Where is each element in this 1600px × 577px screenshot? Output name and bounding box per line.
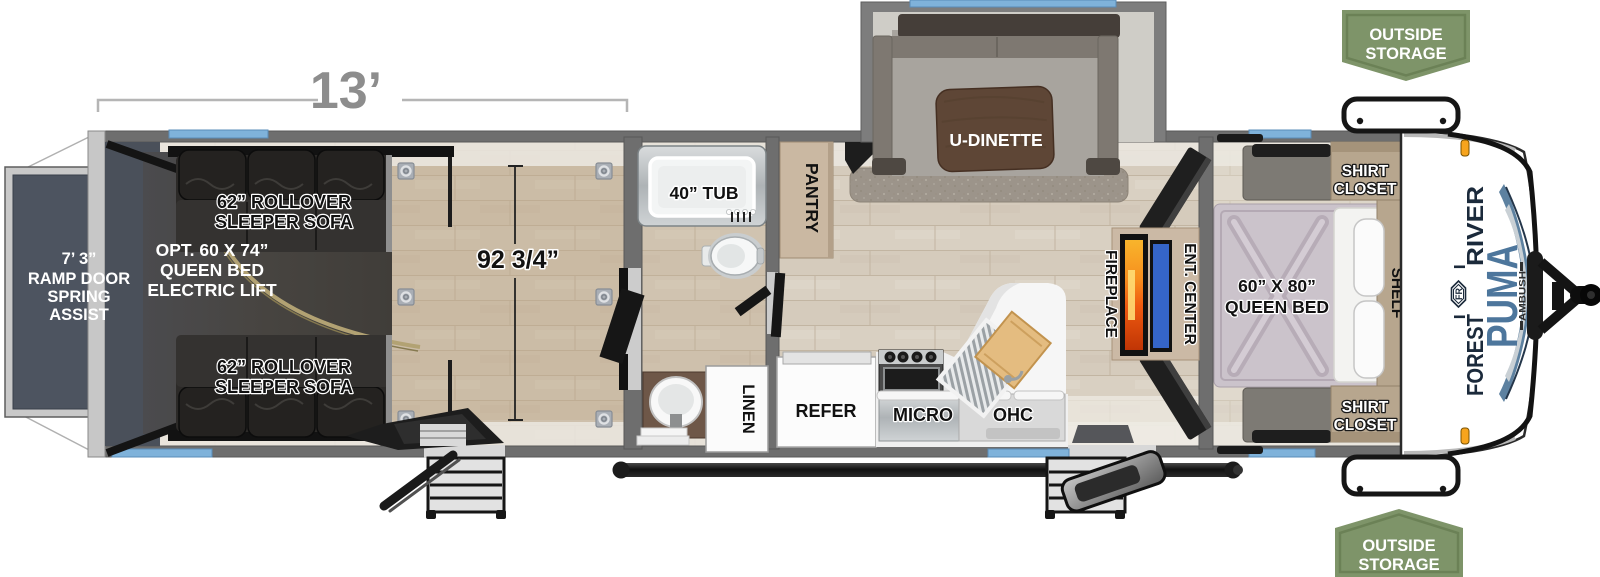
svg-text:40” TUB: 40” TUB (669, 183, 738, 203)
svg-text:13’: 13’ (310, 62, 382, 120)
svg-text:STORAGE: STORAGE (1365, 45, 1446, 63)
svg-text:60” X 80”: 60” X 80” (1238, 276, 1316, 296)
svg-text:ENT. CENTER: ENT. CENTER (1181, 243, 1198, 345)
svg-text:CLOSET: CLOSET (1334, 181, 1397, 198)
svg-text:OPT. 60 X 74”: OPT. 60 X 74” (156, 240, 269, 260)
svg-text:AMBUSH: AMBUSH (1518, 271, 1529, 321)
svg-text:ELECTRIC LIFT: ELECTRIC LIFT (147, 280, 277, 300)
svg-text:STORAGE: STORAGE (1358, 556, 1439, 574)
svg-text:OUTSIDE: OUTSIDE (1369, 26, 1442, 44)
svg-text:LINEN: LINEN (739, 384, 757, 434)
svg-text:92 3/4”: 92 3/4” (477, 246, 559, 274)
svg-text:REFER: REFER (795, 401, 856, 421)
svg-text:MICRO: MICRO (893, 405, 953, 425)
svg-text:SHIRT: SHIRT (1342, 163, 1389, 180)
svg-text:PANTRY: PANTRY (802, 163, 822, 233)
svg-text:62” ROLLOVER: 62” ROLLOVER (217, 192, 351, 212)
svg-text:SPRING: SPRING (47, 288, 110, 306)
svg-text:7’ 3”: 7’ 3” (62, 250, 97, 268)
svg-text:OUTSIDE: OUTSIDE (1362, 537, 1435, 555)
svg-text:SLEEPER SOFA: SLEEPER SOFA (215, 377, 353, 397)
svg-text:QUEEN BED: QUEEN BED (1225, 297, 1329, 317)
svg-text:QUEEN BED: QUEEN BED (160, 260, 264, 280)
svg-text:SHIRT: SHIRT (1342, 399, 1389, 416)
svg-text:62” ROLLOVER: 62” ROLLOVER (217, 357, 351, 377)
svg-text:CLOSET: CLOSET (1334, 417, 1397, 434)
svg-text:SLEEPER SOFA: SLEEPER SOFA (215, 212, 353, 232)
svg-text:U-DINETTE: U-DINETTE (949, 130, 1042, 150)
svg-text:FR: FR (1454, 288, 1464, 300)
svg-text:ASSIST: ASSIST (49, 306, 109, 324)
svg-text:RAMP DOOR: RAMP DOOR (28, 270, 130, 288)
svg-text:OHC: OHC (993, 405, 1033, 425)
svg-text:FIREPLACE: FIREPLACE (1102, 250, 1119, 338)
